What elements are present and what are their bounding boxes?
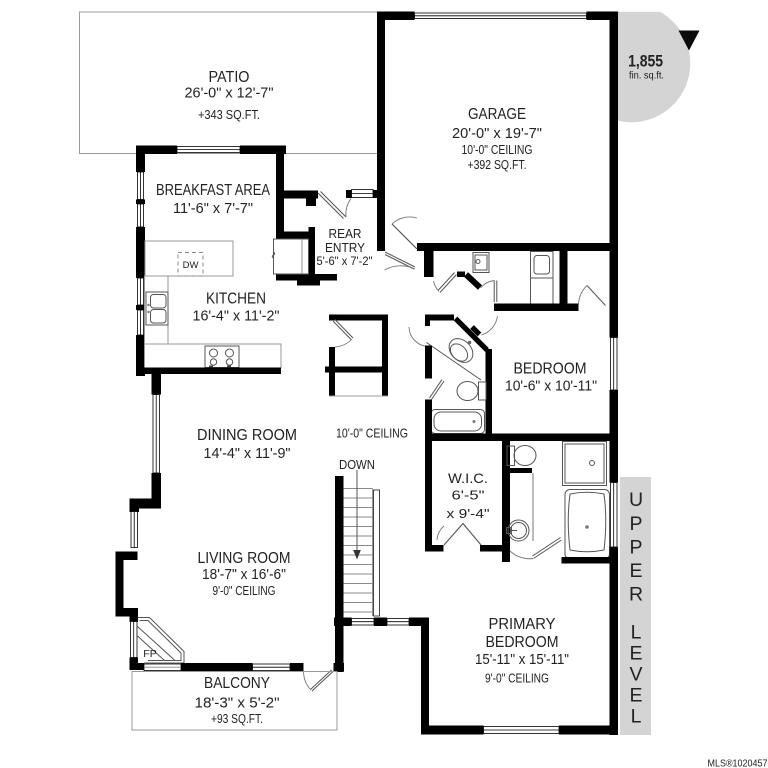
svg-text:FP: FP	[143, 648, 156, 660]
svg-text:KITCHEN: KITCHEN	[206, 291, 266, 308]
svg-text:MLS®1020457: MLS®1020457	[708, 757, 768, 768]
svg-text:18'-7" x 16'-6": 18'-7" x 16'-6"	[202, 567, 286, 583]
svg-text:P: P	[629, 513, 642, 535]
svg-text:E: E	[629, 685, 642, 707]
svg-text:9'-0" CEILING: 9'-0" CEILING	[213, 584, 276, 598]
svg-text:W.I.C.: W.I.C.	[448, 470, 488, 486]
svg-text:10'-0" CEILING: 10'-0" CEILING	[462, 143, 533, 157]
svg-text:BREAKFAST AREA: BREAKFAST AREA	[156, 182, 271, 199]
svg-text:+392 SQ.FT.: +392 SQ.FT.	[468, 158, 527, 172]
svg-text:9'-0" CEILING: 9'-0" CEILING	[485, 672, 549, 686]
svg-text:+343 SQ.FT.: +343 SQ.FT.	[198, 108, 260, 122]
svg-text:DW: DW	[183, 260, 199, 271]
svg-text:26'-0" x 12'-7": 26'-0" x 12'-7"	[185, 86, 274, 102]
svg-text:R: R	[629, 584, 643, 606]
svg-text:BEDROOM: BEDROOM	[514, 361, 587, 378]
svg-text:15'-11" x 15'-11": 15'-11" x 15'-11"	[475, 652, 569, 668]
svg-text:5'-6" x 7'-2": 5'-6" x 7'-2"	[317, 254, 373, 268]
svg-text:16'-4" x 11'-2": 16'-4" x 11'-2"	[193, 309, 280, 325]
svg-text:E: E	[629, 560, 642, 582]
svg-text:6'-5": 6'-5"	[452, 488, 485, 503]
svg-text:BEDROOM: BEDROOM	[486, 634, 559, 651]
svg-text:REAR: REAR	[329, 227, 362, 241]
svg-text:10'-0" CEILING: 10'-0" CEILING	[336, 427, 408, 441]
svg-text:LIVING ROOM: LIVING ROOM	[198, 550, 291, 567]
svg-text:1,855: 1,855	[628, 53, 663, 71]
svg-text:+93 SQ.FT.: +93 SQ.FT.	[211, 712, 263, 726]
svg-text:DOWN: DOWN	[339, 458, 375, 472]
svg-text:V: V	[629, 664, 642, 686]
svg-text:U: U	[629, 489, 643, 511]
svg-text:DINING ROOM: DINING ROOM	[197, 427, 297, 444]
svg-text:fin. sq.ft.: fin. sq.ft.	[629, 71, 664, 82]
svg-text:11'-6" x 7'-7": 11'-6" x 7'-7"	[173, 201, 253, 217]
svg-text:14'-4" x 11'-9": 14'-4" x 11'-9"	[204, 446, 291, 462]
svg-text:PRIMARY: PRIMARY	[489, 616, 556, 633]
svg-text:P: P	[629, 537, 642, 559]
svg-text:E: E	[629, 643, 642, 665]
svg-text:10'-6" x 10'-11": 10'-6" x 10'-11"	[505, 379, 597, 395]
svg-text:L: L	[631, 622, 642, 644]
svg-text:x 9'-4": x 9'-4"	[447, 506, 490, 521]
svg-text:PATIO: PATIO	[209, 69, 250, 86]
svg-text:18'-3" x 5'-2": 18'-3" x 5'-2"	[195, 696, 280, 712]
svg-text:BALCONY: BALCONY	[204, 675, 270, 692]
svg-text:GARAGE: GARAGE	[468, 106, 526, 123]
svg-text:20'-0" x 19'-7": 20'-0" x 19'-7"	[452, 126, 542, 142]
svg-text:ENTRY: ENTRY	[325, 241, 366, 255]
svg-text:L: L	[631, 706, 642, 728]
